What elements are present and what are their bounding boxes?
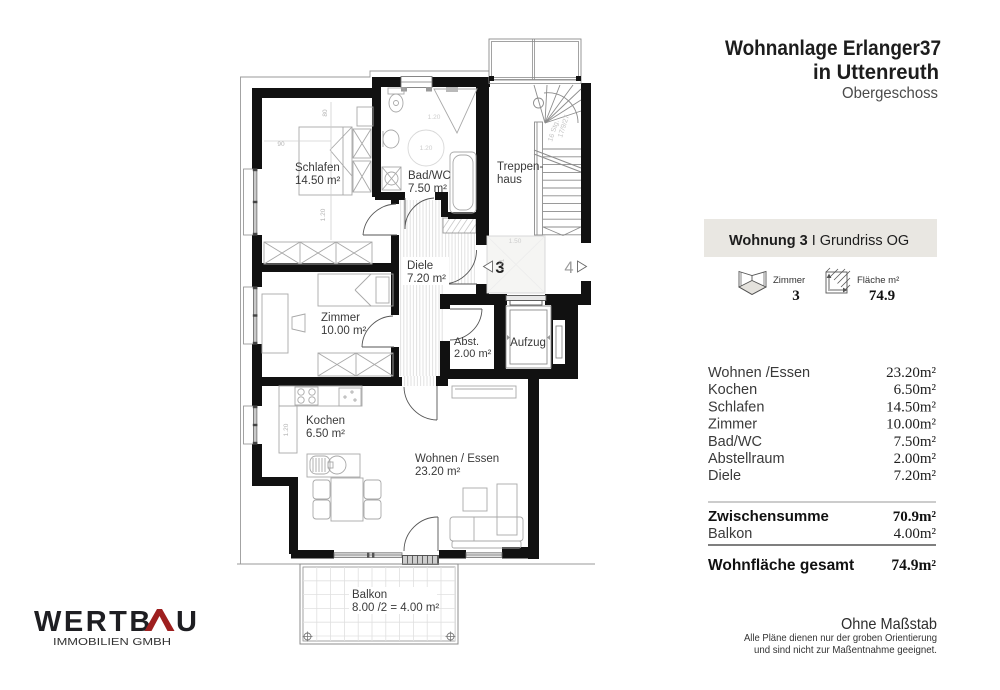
svg-text:1.51: 1.51 [499,258,506,271]
svg-text:14.50m²: 14.50m² [886,399,936,415]
svg-text:2.00 m²: 2.00 m² [454,348,492,360]
svg-text:80: 80 [322,109,329,117]
svg-text:Kochen: Kochen [708,382,757,398]
svg-text:14.50 m²: 14.50 m² [295,175,341,187]
svg-text:4: 4 [564,259,573,277]
svg-text:Alle Pläne dienen nur der grob: Alle Pläne dienen nur der groben Orienti… [744,632,937,644]
svg-text:6.50 m²: 6.50 m² [306,428,345,440]
svg-text:Wohnung 3 I Grundriss OG: Wohnung 3 I Grundriss OG [729,233,909,249]
svg-text:8.00 /2 = 4.00 m²: 8.00 /2 = 4.00 m² [352,602,439,614]
svg-text:WERTB: WERTB [34,606,153,638]
svg-text:Wohnfläche gesamt: Wohnfläche gesamt [708,557,854,574]
svg-text:7.50 m²: 7.50 m² [408,183,447,195]
svg-text:U: U [176,606,197,638]
svg-text:Wohnen / Essen: Wohnen / Essen [415,453,499,465]
svg-text:Wohnanlage Erlanger37: Wohnanlage Erlanger37 [725,36,941,60]
svg-text:Treppen-: Treppen- [497,161,543,173]
svg-text:Balkon: Balkon [708,526,752,542]
svg-text:Abstellraum: Abstellraum [708,451,785,467]
svg-text:1.20: 1.20 [428,114,441,121]
svg-text:Zwischensumme: Zwischensumme [708,508,829,525]
svg-text:Aufzug: Aufzug [510,337,546,349]
svg-text:Diele: Diele [708,468,741,484]
svg-text:74.9m²: 74.9m² [891,557,936,574]
svg-text:1.20: 1.20 [420,145,433,152]
svg-text:23.20 m²: 23.20 m² [415,466,461,478]
svg-text:in Uttenreuth: in Uttenreuth [813,60,939,84]
svg-text:Bad/WC: Bad/WC [408,170,451,182]
svg-text:10.00m²: 10.00m² [886,417,936,433]
svg-text:Bad/WC: Bad/WC [708,434,762,450]
svg-text:6.50m²: 6.50m² [894,382,937,398]
svg-text:haus: haus [497,174,522,186]
svg-text:Fläche m²: Fläche m² [857,275,899,286]
svg-text:Abst.: Abst. [454,336,479,348]
svg-text:Balkon: Balkon [352,589,387,601]
svg-text:Zimmer: Zimmer [708,417,757,433]
svg-text:74.9: 74.9 [869,288,895,304]
svg-text:7.20 m²: 7.20 m² [407,273,446,285]
svg-text:7.50m²: 7.50m² [894,434,937,450]
svg-text:7.20m²: 7.20m² [894,468,937,484]
svg-text:Kochen: Kochen [306,415,345,427]
svg-text:10.00 m²: 10.00 m² [321,325,367,337]
svg-text:1.20: 1.20 [283,423,290,436]
svg-text:1.20: 1.20 [320,208,327,221]
svg-text:Schlafen: Schlafen [708,399,764,415]
svg-text:1.50: 1.50 [509,238,522,245]
svg-text:4.00m²: 4.00m² [894,526,937,542]
svg-text:IMMOBILIEN GMBH: IMMOBILIEN GMBH [53,636,171,648]
svg-text:und sind nicht zur Maßentnahme: und sind nicht zur Maßentnahme geeignet. [754,644,937,656]
svg-text:Zimmer: Zimmer [321,312,360,324]
svg-text:Diele: Diele [407,260,433,272]
svg-text:70.9m²: 70.9m² [893,509,937,525]
svg-text:Obergeschoss: Obergeschoss [842,85,938,102]
svg-text:3: 3 [792,288,800,304]
svg-text:Wohnen /Essen: Wohnen /Essen [708,365,810,381]
svg-text:Ohne Maßstab: Ohne Maßstab [841,616,937,633]
svg-text:23.20m²: 23.20m² [886,365,936,381]
svg-text:Schlafen: Schlafen [295,162,340,174]
svg-text:2.00m²: 2.00m² [894,451,937,467]
svg-text:90: 90 [277,141,285,148]
svg-text:Zimmer: Zimmer [773,275,805,286]
